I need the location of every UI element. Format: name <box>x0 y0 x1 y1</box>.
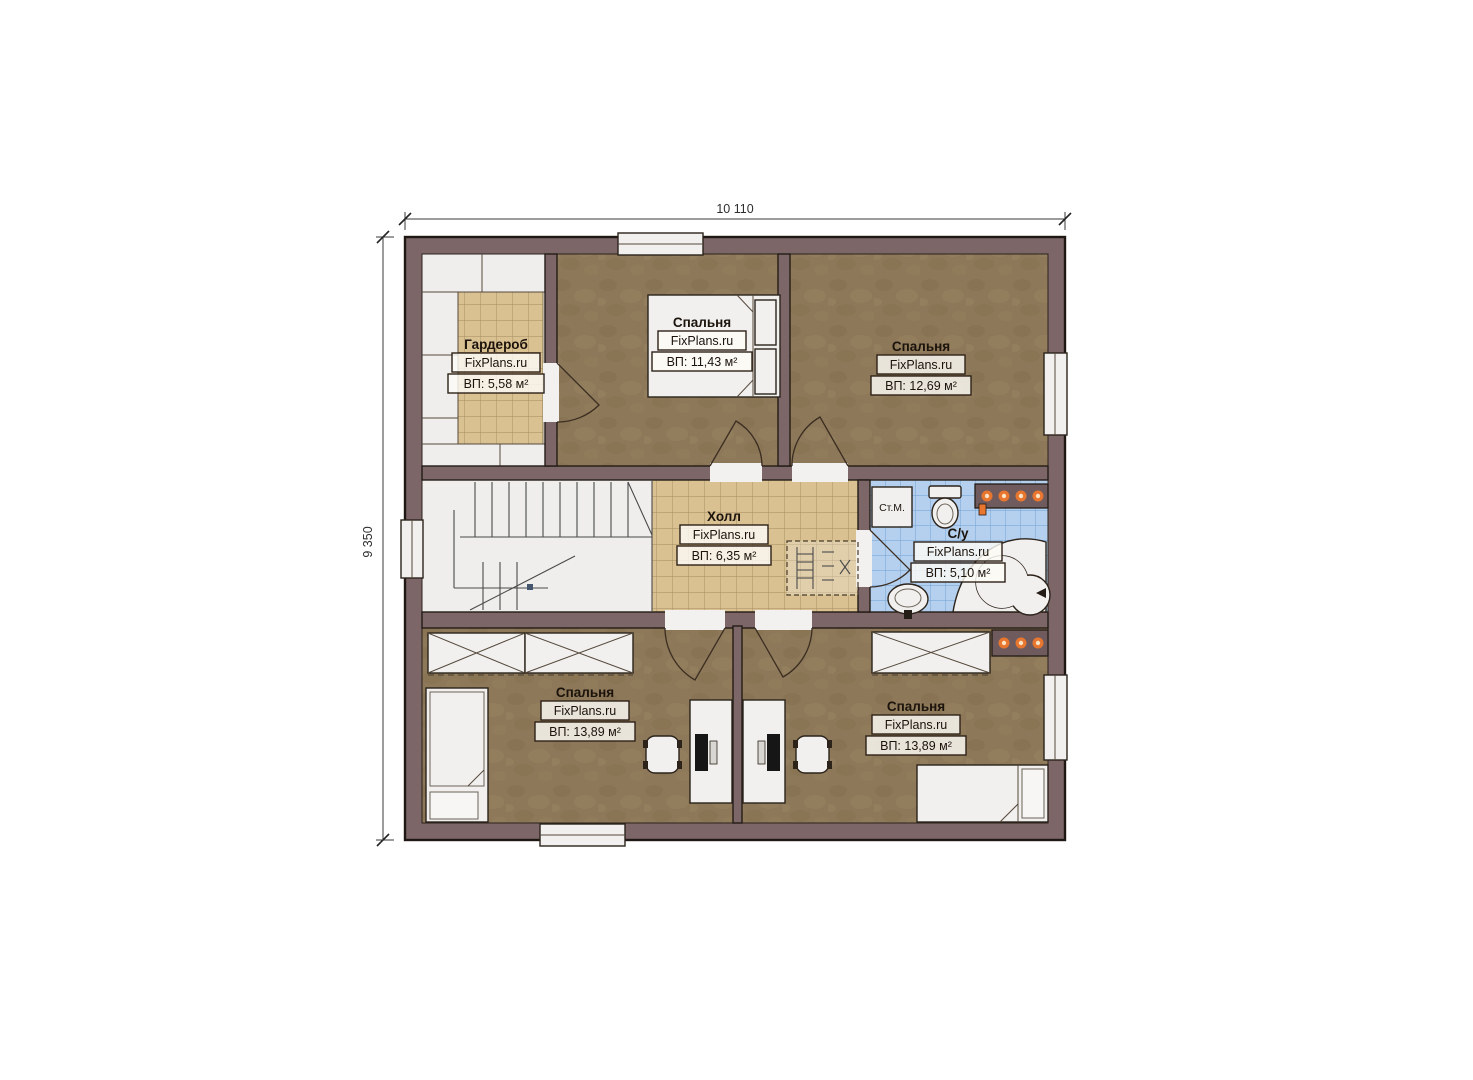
room-area: ВП: 5,58 м² <box>464 377 529 391</box>
chair-left <box>643 736 682 773</box>
room-name: С/у <box>947 526 969 541</box>
watermark: FixPlans.ru <box>890 358 953 372</box>
attic-ladder <box>787 541 858 595</box>
watermark: FixPlans.ru <box>554 704 617 718</box>
room-name: Холл <box>707 509 741 524</box>
dimension-height-label: 9 350 <box>361 526 375 557</box>
washing-machine: Ст.М. <box>872 487 912 527</box>
watermark: FixPlans.ru <box>465 356 528 370</box>
desk-right <box>743 700 785 803</box>
window-left <box>401 520 423 578</box>
room-name: Спальня <box>556 685 614 700</box>
room-area: ВП: 13,89 м² <box>549 725 621 739</box>
washing-machine-label: Ст.М. <box>879 502 905 514</box>
room-area: ВП: 12,69 м² <box>885 379 957 393</box>
room-name: Спальня <box>892 339 950 354</box>
watermark: FixPlans.ru <box>671 334 734 348</box>
window-top <box>618 233 703 255</box>
bed-bottom-right <box>917 765 1048 822</box>
desk-left <box>690 700 732 803</box>
wall-wardrobe <box>545 254 557 466</box>
window-bottom <box>540 824 625 846</box>
stair-direction-node <box>527 584 533 590</box>
wardrobe-units-bottom-left <box>428 633 633 675</box>
room-name: Спальня <box>887 699 945 714</box>
chair-right <box>793 736 832 773</box>
watermark: FixPlans.ru <box>885 718 948 732</box>
staircase-floor <box>422 480 652 612</box>
watermark: FixPlans.ru <box>927 545 990 559</box>
room-area: ВП: 13,89 м² <box>880 739 952 753</box>
room-name: Гардероб <box>464 337 528 352</box>
room-name: Спальня <box>673 315 731 330</box>
watermark: FixPlans.ru <box>693 528 756 542</box>
dimension-left: 9 350 <box>361 231 394 846</box>
window-right-lower <box>1044 675 1067 760</box>
dimension-width-label: 10 110 <box>716 202 753 216</box>
room-area: ВП: 5,10 м² <box>926 566 991 580</box>
dimension-top: 10 110 <box>399 202 1071 230</box>
room-area: ВП: 6,35 м² <box>692 549 757 563</box>
room-area: ВП: 11,43 м² <box>667 355 738 369</box>
window-right-upper <box>1044 353 1067 435</box>
toilet <box>929 486 961 528</box>
wall-bottom-bedrooms <box>733 626 742 823</box>
radiator-bottom-right <box>992 630 1048 656</box>
bed-bottom-left <box>426 688 488 822</box>
floor-plan-page: 10 110 9 350 <box>0 0 1473 1080</box>
wardrobe-unit-bottom-right <box>872 632 990 675</box>
floor-plan-drawing: 10 110 9 350 <box>0 0 1473 1080</box>
